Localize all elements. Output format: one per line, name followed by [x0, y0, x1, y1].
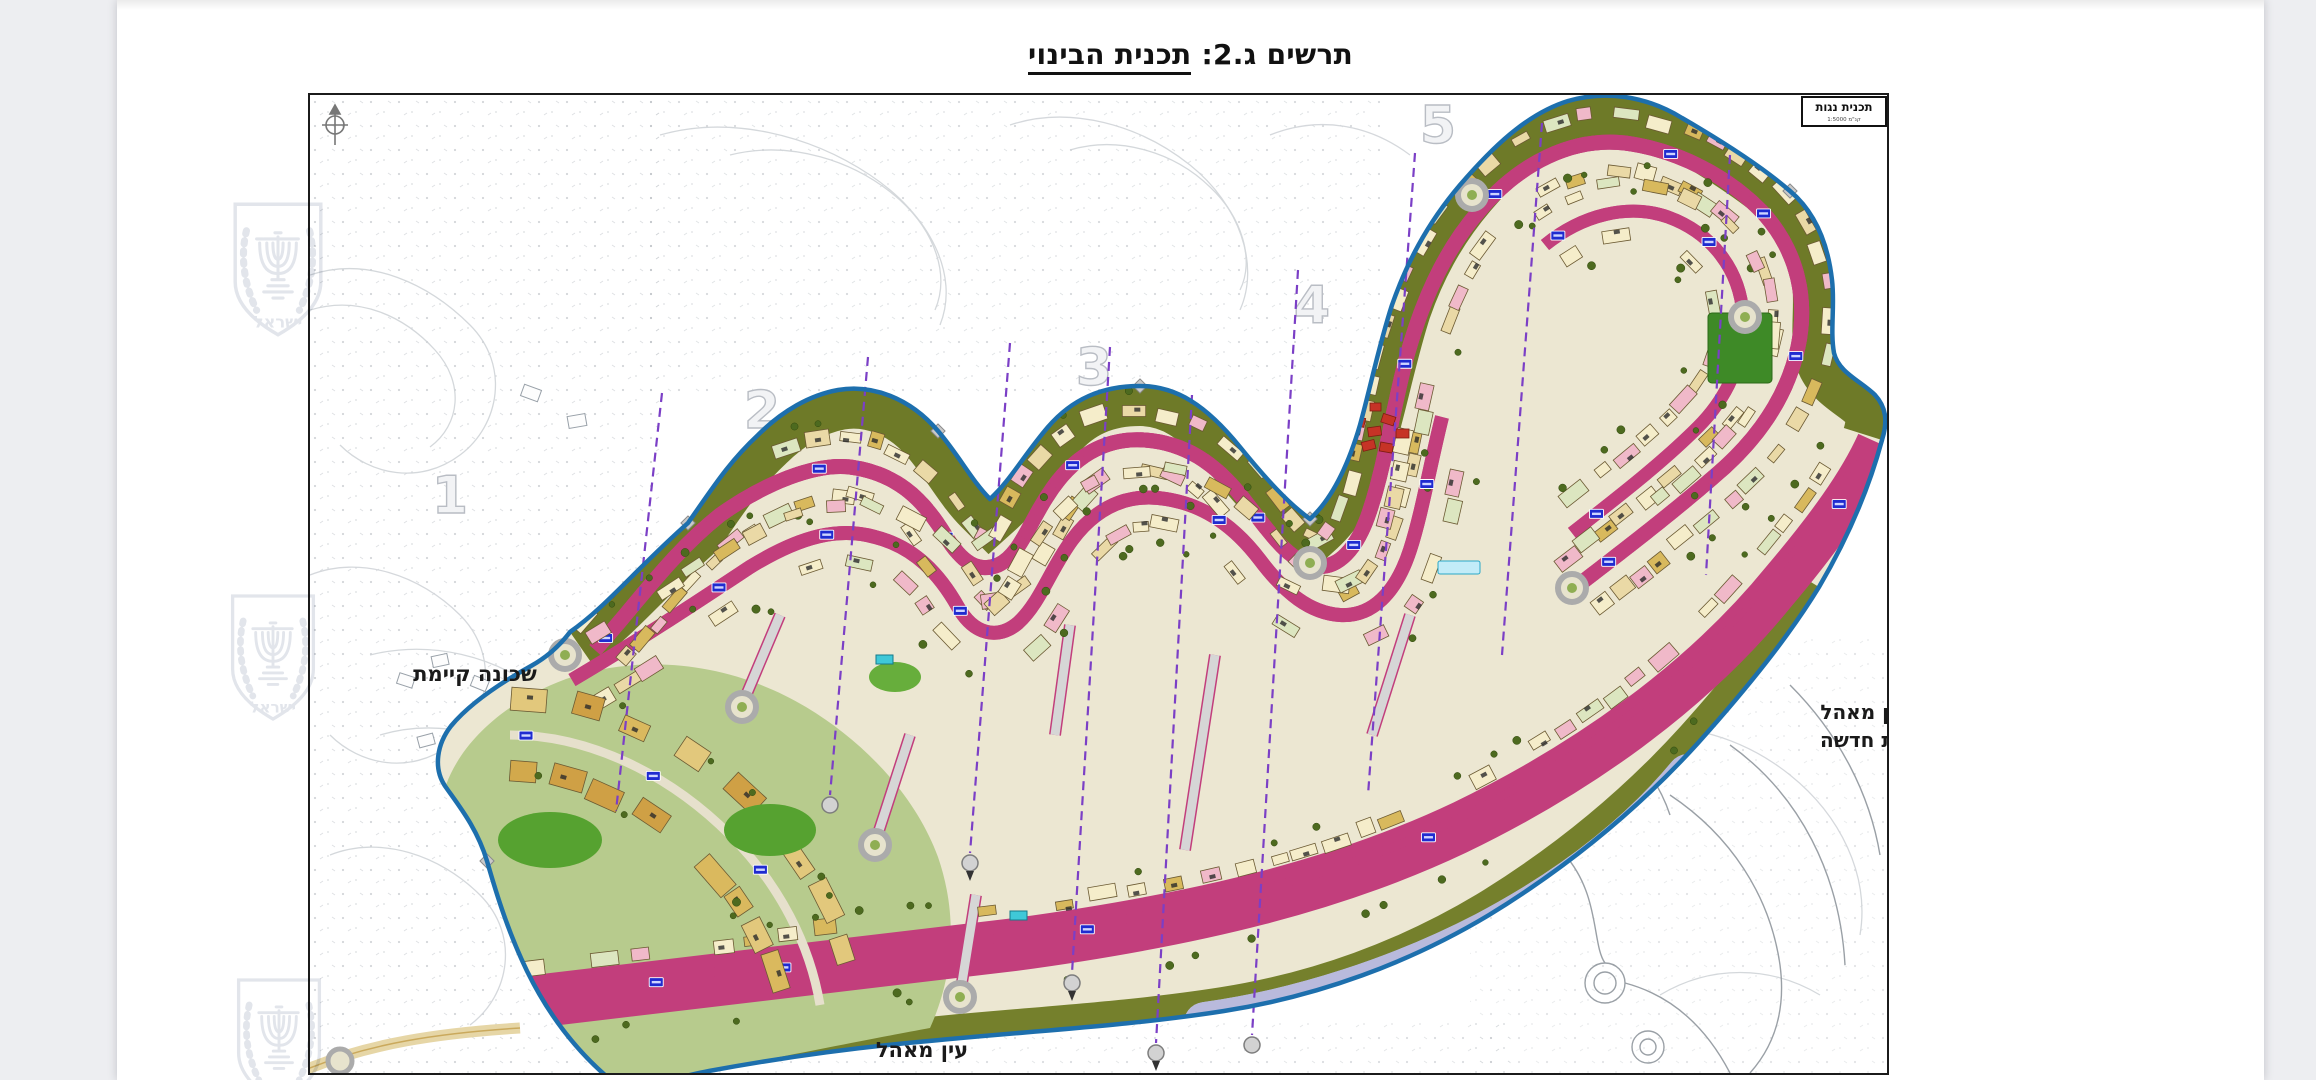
corner-box-line2: קנ"מ 1:5000 — [1827, 117, 1861, 123]
phase-number-4: 4 — [1294, 276, 1330, 336]
map-corner-box: תכנית נגות קנ"מ 1:5000 — [1802, 97, 1886, 126]
phase-number-1: 1 — [432, 466, 468, 526]
label-right-line2: נית חדשה — [1820, 728, 1887, 752]
phase-number-5: 5 — [1420, 96, 1456, 156]
label-right-line1: נין מאהל — [1820, 700, 1887, 724]
corner-box-line1: תכנית נגות — [1816, 100, 1873, 114]
map-svg: 1 2 3 4 5 — [310, 95, 1887, 1073]
document-page: תרשים ג.2: תכנית הבינוי — [117, 0, 2264, 1080]
building-plan-map: 1 2 3 4 5 — [308, 93, 1889, 1075]
label-existing-neighborhood: שכונה קיימת — [413, 662, 537, 686]
cyan-info-pill — [1438, 561, 1480, 574]
figure-title-prefix: תרשים ג.2: — [1191, 38, 1353, 71]
figure-title: תרשים ג.2: תכנית הבינוי — [117, 38, 2264, 71]
label-ein-mahel-bottom: עין מאהל — [876, 1038, 968, 1062]
figure-title-main: תכנית הבינוי — [1028, 38, 1192, 75]
